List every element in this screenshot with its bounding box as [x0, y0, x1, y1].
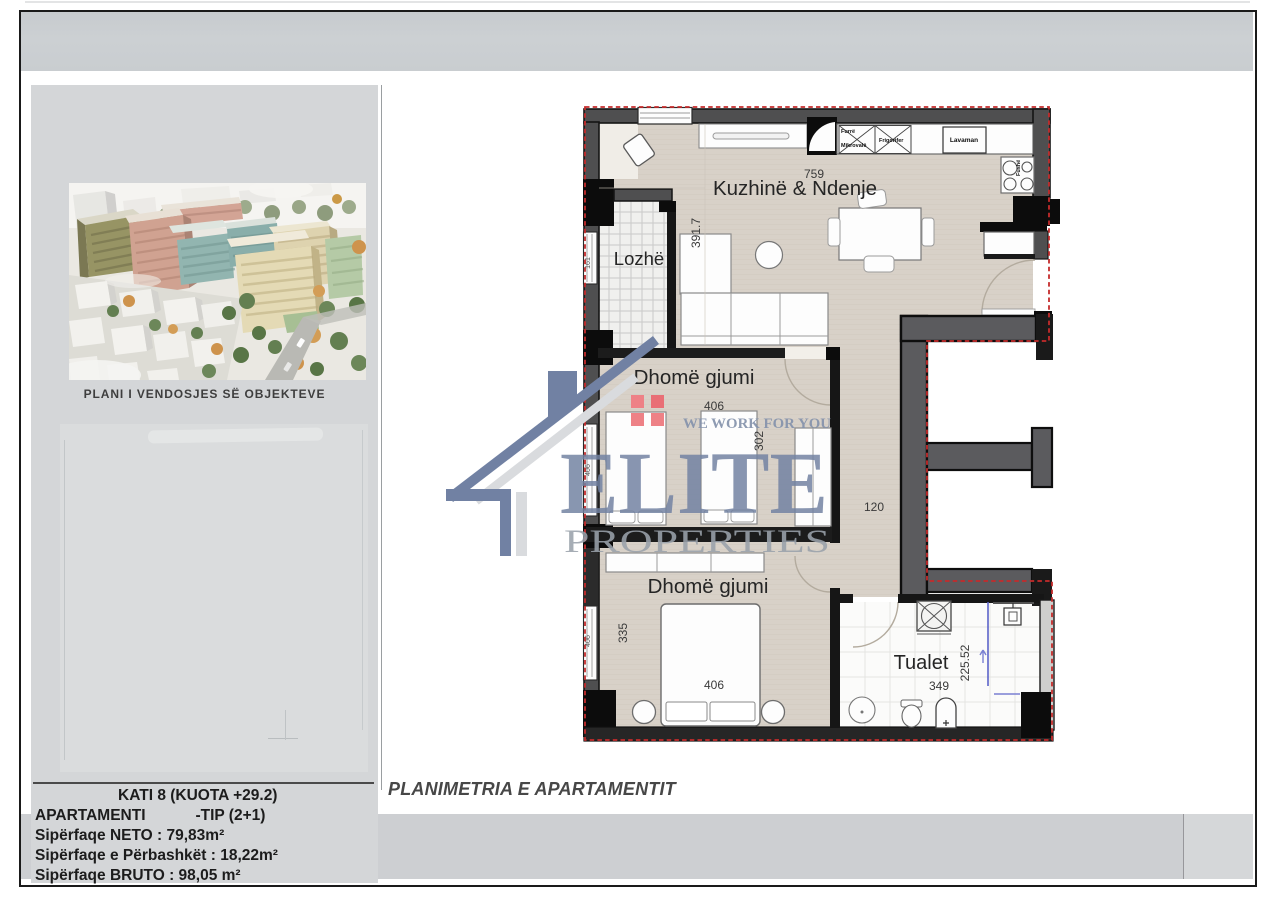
svg-text:759: 759 [804, 167, 824, 181]
svg-text:391.7: 391.7 [689, 218, 703, 248]
svg-text:Lavaman: Lavaman [950, 137, 978, 144]
svg-text:Kuzhinë & Ndenje: Kuzhinë & Ndenje [713, 177, 877, 200]
svg-text:349: 349 [929, 679, 949, 693]
svg-text:Dhomë gjumi: Dhomë gjumi [648, 575, 769, 598]
svg-text:PROPERTIES: PROPERTIES [564, 524, 830, 560]
svg-text:ELITE: ELITE [560, 435, 828, 533]
svg-text:406: 406 [585, 635, 592, 647]
svg-text:406: 406 [704, 399, 724, 413]
svg-text:Lozhë: Lozhë [614, 248, 664, 269]
svg-text:Fushë: Fushë [1016, 160, 1022, 176]
svg-text:Tualet: Tualet [894, 652, 949, 674]
svg-text:120: 120 [864, 500, 884, 514]
svg-text:225.52: 225.52 [958, 644, 972, 681]
svg-text:Dhomë gjumi: Dhomë gjumi [634, 366, 755, 389]
svg-text:Frigorifer: Frigorifer [879, 138, 904, 144]
svg-text:406: 406 [704, 678, 724, 692]
svg-text:Mikrovalë: Mikrovalë [841, 143, 866, 149]
svg-text:Furrë: Furrë [841, 129, 855, 135]
svg-text:WE WORK FOR YOU: WE WORK FOR YOU [683, 416, 831, 432]
svg-text:335: 335 [616, 623, 630, 643]
svg-text:161: 161 [585, 257, 592, 269]
